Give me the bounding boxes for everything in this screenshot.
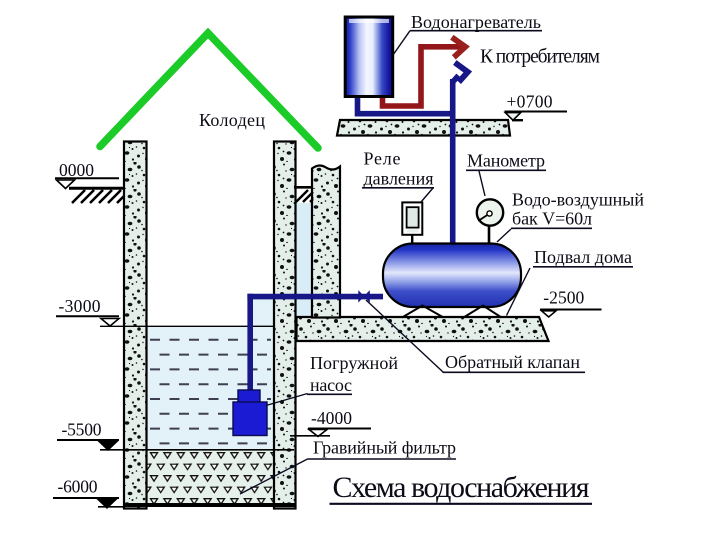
svg-text:Водонагреватель: Водонагреватель	[411, 12, 541, 32]
svg-text:К потребителям: К потребителям	[480, 47, 600, 68]
svg-text:Реле: Реле	[364, 149, 401, 169]
svg-text:Колодец: Колодец	[199, 110, 265, 130]
svg-text:-2500: -2500	[543, 288, 584, 308]
svg-text:Гравийный фильтр: Гравийный фильтр	[313, 438, 456, 458]
svg-text:давления: давления	[364, 169, 434, 189]
svg-text:Погружной: Погружной	[310, 353, 398, 373]
svg-text:-5500: -5500	[62, 420, 102, 440]
svg-text:бак V=60л: бак V=60л	[512, 209, 592, 229]
svg-text:Подвал дома: Подвал дома	[534, 247, 632, 267]
svg-text:насос: насос	[310, 375, 352, 395]
svg-text:Схема водоснабжения: Схема водоснабжения	[333, 471, 590, 504]
svg-text:-6000: -6000	[58, 477, 98, 497]
svg-text:Обратный клапан: Обратный клапан	[445, 352, 580, 372]
svg-text:+0700: +0700	[507, 91, 553, 111]
svg-text:-4000: -4000	[311, 408, 352, 428]
svg-text:-3000: -3000	[59, 296, 101, 316]
svg-text:0000: 0000	[59, 160, 94, 180]
svg-text:Манометр: Манометр	[467, 151, 545, 171]
svg-text:Водо-воздушный: Водо-воздушный	[512, 190, 644, 210]
